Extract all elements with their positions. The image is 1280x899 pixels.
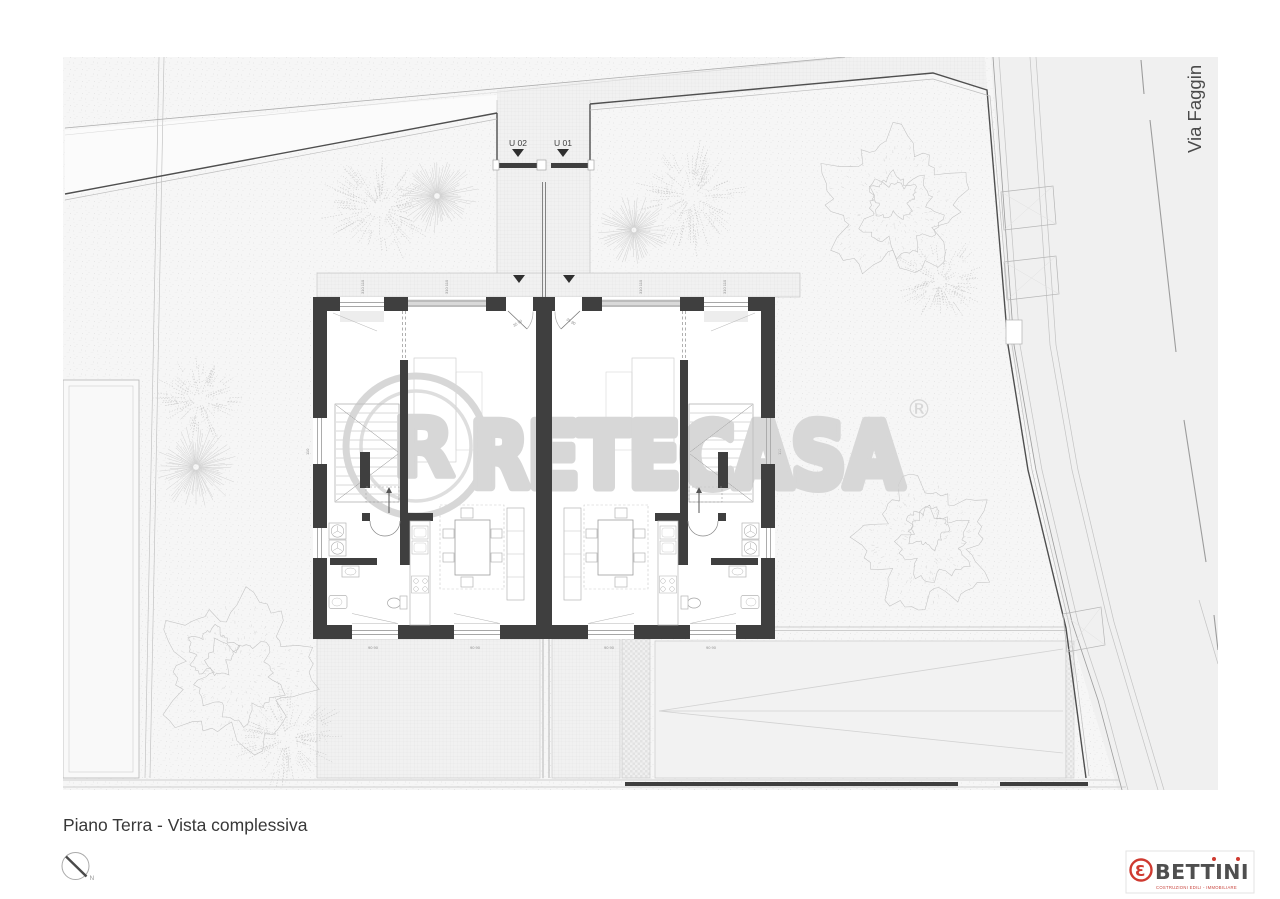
- bettini-icon-glyph: Ɛ: [1135, 862, 1145, 880]
- unit-label-u02: U 02: [509, 138, 527, 148]
- dimension-label: 110: [305, 448, 310, 455]
- floor-plan-drawing: 310 110 310 110 310 110 310 110 90 90 90…: [0, 0, 1280, 899]
- terrace-left: [317, 639, 540, 778]
- kitchen-counter: [410, 521, 430, 625]
- dimension-label: 310 110: [444, 279, 449, 294]
- dimension-label: 310 110: [360, 279, 365, 294]
- window: [313, 418, 327, 464]
- terrace-right: [552, 639, 620, 778]
- paved-path: [622, 639, 650, 778]
- bettini-dot-icon: [1212, 857, 1216, 861]
- glazed-door: [408, 297, 486, 311]
- driveway: [497, 100, 590, 273]
- dimension-label: 310 110: [722, 279, 727, 294]
- window: [313, 528, 327, 558]
- watermark-brand: RETECASA: [470, 404, 904, 509]
- registered-mark: ®: [906, 395, 932, 425]
- dimension-label: 90 90: [706, 645, 717, 650]
- north-label: N: [90, 875, 95, 882]
- bettini-wordmark: BETTINI: [1155, 860, 1249, 884]
- dimension-label: 90 90: [604, 645, 615, 650]
- bettini-dot-icon: [1236, 857, 1240, 861]
- left-parcel: [63, 380, 139, 778]
- floor-plan-sheet: 310 110 310 110 310 110 310 110 90 90 90…: [0, 0, 1280, 899]
- publisher-logo: Ɛ BETTINI COSTRUZIONI EDILI - IMMOBILIAR…: [1126, 851, 1254, 893]
- bettini-tagline: COSTRUZIONI EDILI - IMMOBILIARE: [1156, 885, 1237, 890]
- dining-table: [455, 520, 490, 575]
- dimension-label: 90 90: [368, 645, 379, 650]
- page-title: Piano Terra - Vista complessiva: [63, 815, 308, 835]
- walkway-band: [317, 273, 800, 297]
- dimension-label: 90 90: [470, 645, 481, 650]
- street-label: Via Faggin: [1184, 65, 1205, 153]
- dimension-label: 310 110: [638, 279, 643, 294]
- carport-roof: [655, 627, 1074, 778]
- watermark-logo-letter: R: [392, 401, 455, 496]
- unit-label-u01: U 01: [554, 138, 572, 148]
